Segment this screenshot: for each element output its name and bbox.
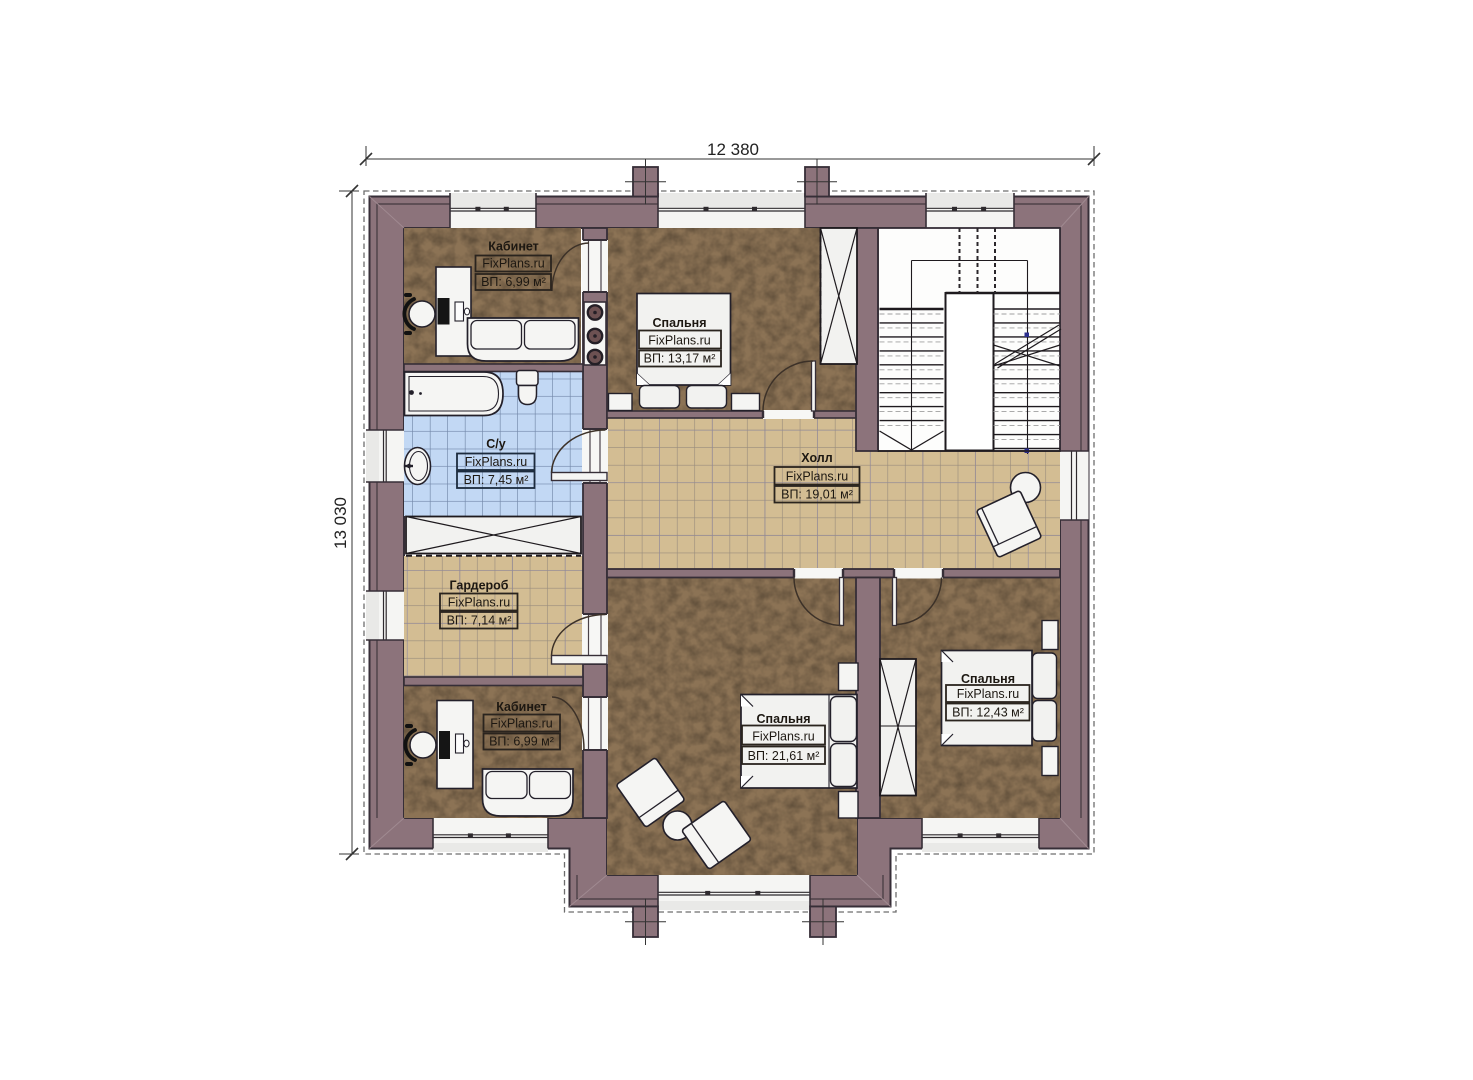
svg-text:FixPlans.ru: FixPlans.ru (482, 257, 545, 271)
svg-text:FixPlans.ru: FixPlans.ru (786, 470, 849, 484)
svg-text:12 380: 12 380 (707, 140, 759, 159)
svg-text:ВП: 12,43 м²: ВП: 12,43 м² (952, 706, 1024, 720)
svg-text:ВП: 21,61 м²: ВП: 21,61 м² (748, 749, 820, 763)
svg-text:ВП: 6,99 м²: ВП: 6,99 м² (489, 735, 554, 749)
svg-text:FixPlans.ru: FixPlans.ru (648, 334, 711, 348)
svg-text:Спальня: Спальня (961, 672, 1015, 686)
svg-text:FixPlans.ru: FixPlans.ru (490, 717, 553, 731)
svg-text:С/у: С/у (486, 437, 506, 451)
svg-text:Гардероб: Гардероб (449, 579, 508, 593)
svg-text:ВП: 19,01 м²: ВП: 19,01 м² (781, 488, 853, 502)
svg-text:ВП: 7,14 м²: ВП: 7,14 м² (447, 614, 512, 628)
svg-text:Кабинет: Кабинет (488, 240, 539, 254)
svg-text:FixPlans.ru: FixPlans.ru (752, 730, 815, 744)
svg-text:Холл: Холл (801, 451, 832, 465)
svg-text:Спальня: Спальня (653, 316, 707, 330)
svg-text:ВП: 7,45 м²: ВП: 7,45 м² (464, 473, 529, 487)
svg-text:13 030: 13 030 (331, 497, 350, 549)
svg-text:Спальня: Спальня (757, 712, 811, 726)
svg-text:ВП: 13,17 м²: ВП: 13,17 м² (644, 352, 716, 366)
svg-text:ВП: 6,99 м²: ВП: 6,99 м² (481, 275, 546, 289)
svg-text:FixPlans.ru: FixPlans.ru (448, 596, 511, 610)
svg-text:FixPlans.ru: FixPlans.ru (465, 455, 528, 469)
svg-text:FixPlans.ru: FixPlans.ru (957, 687, 1020, 701)
svg-text:Кабинет: Кабинет (496, 700, 547, 714)
